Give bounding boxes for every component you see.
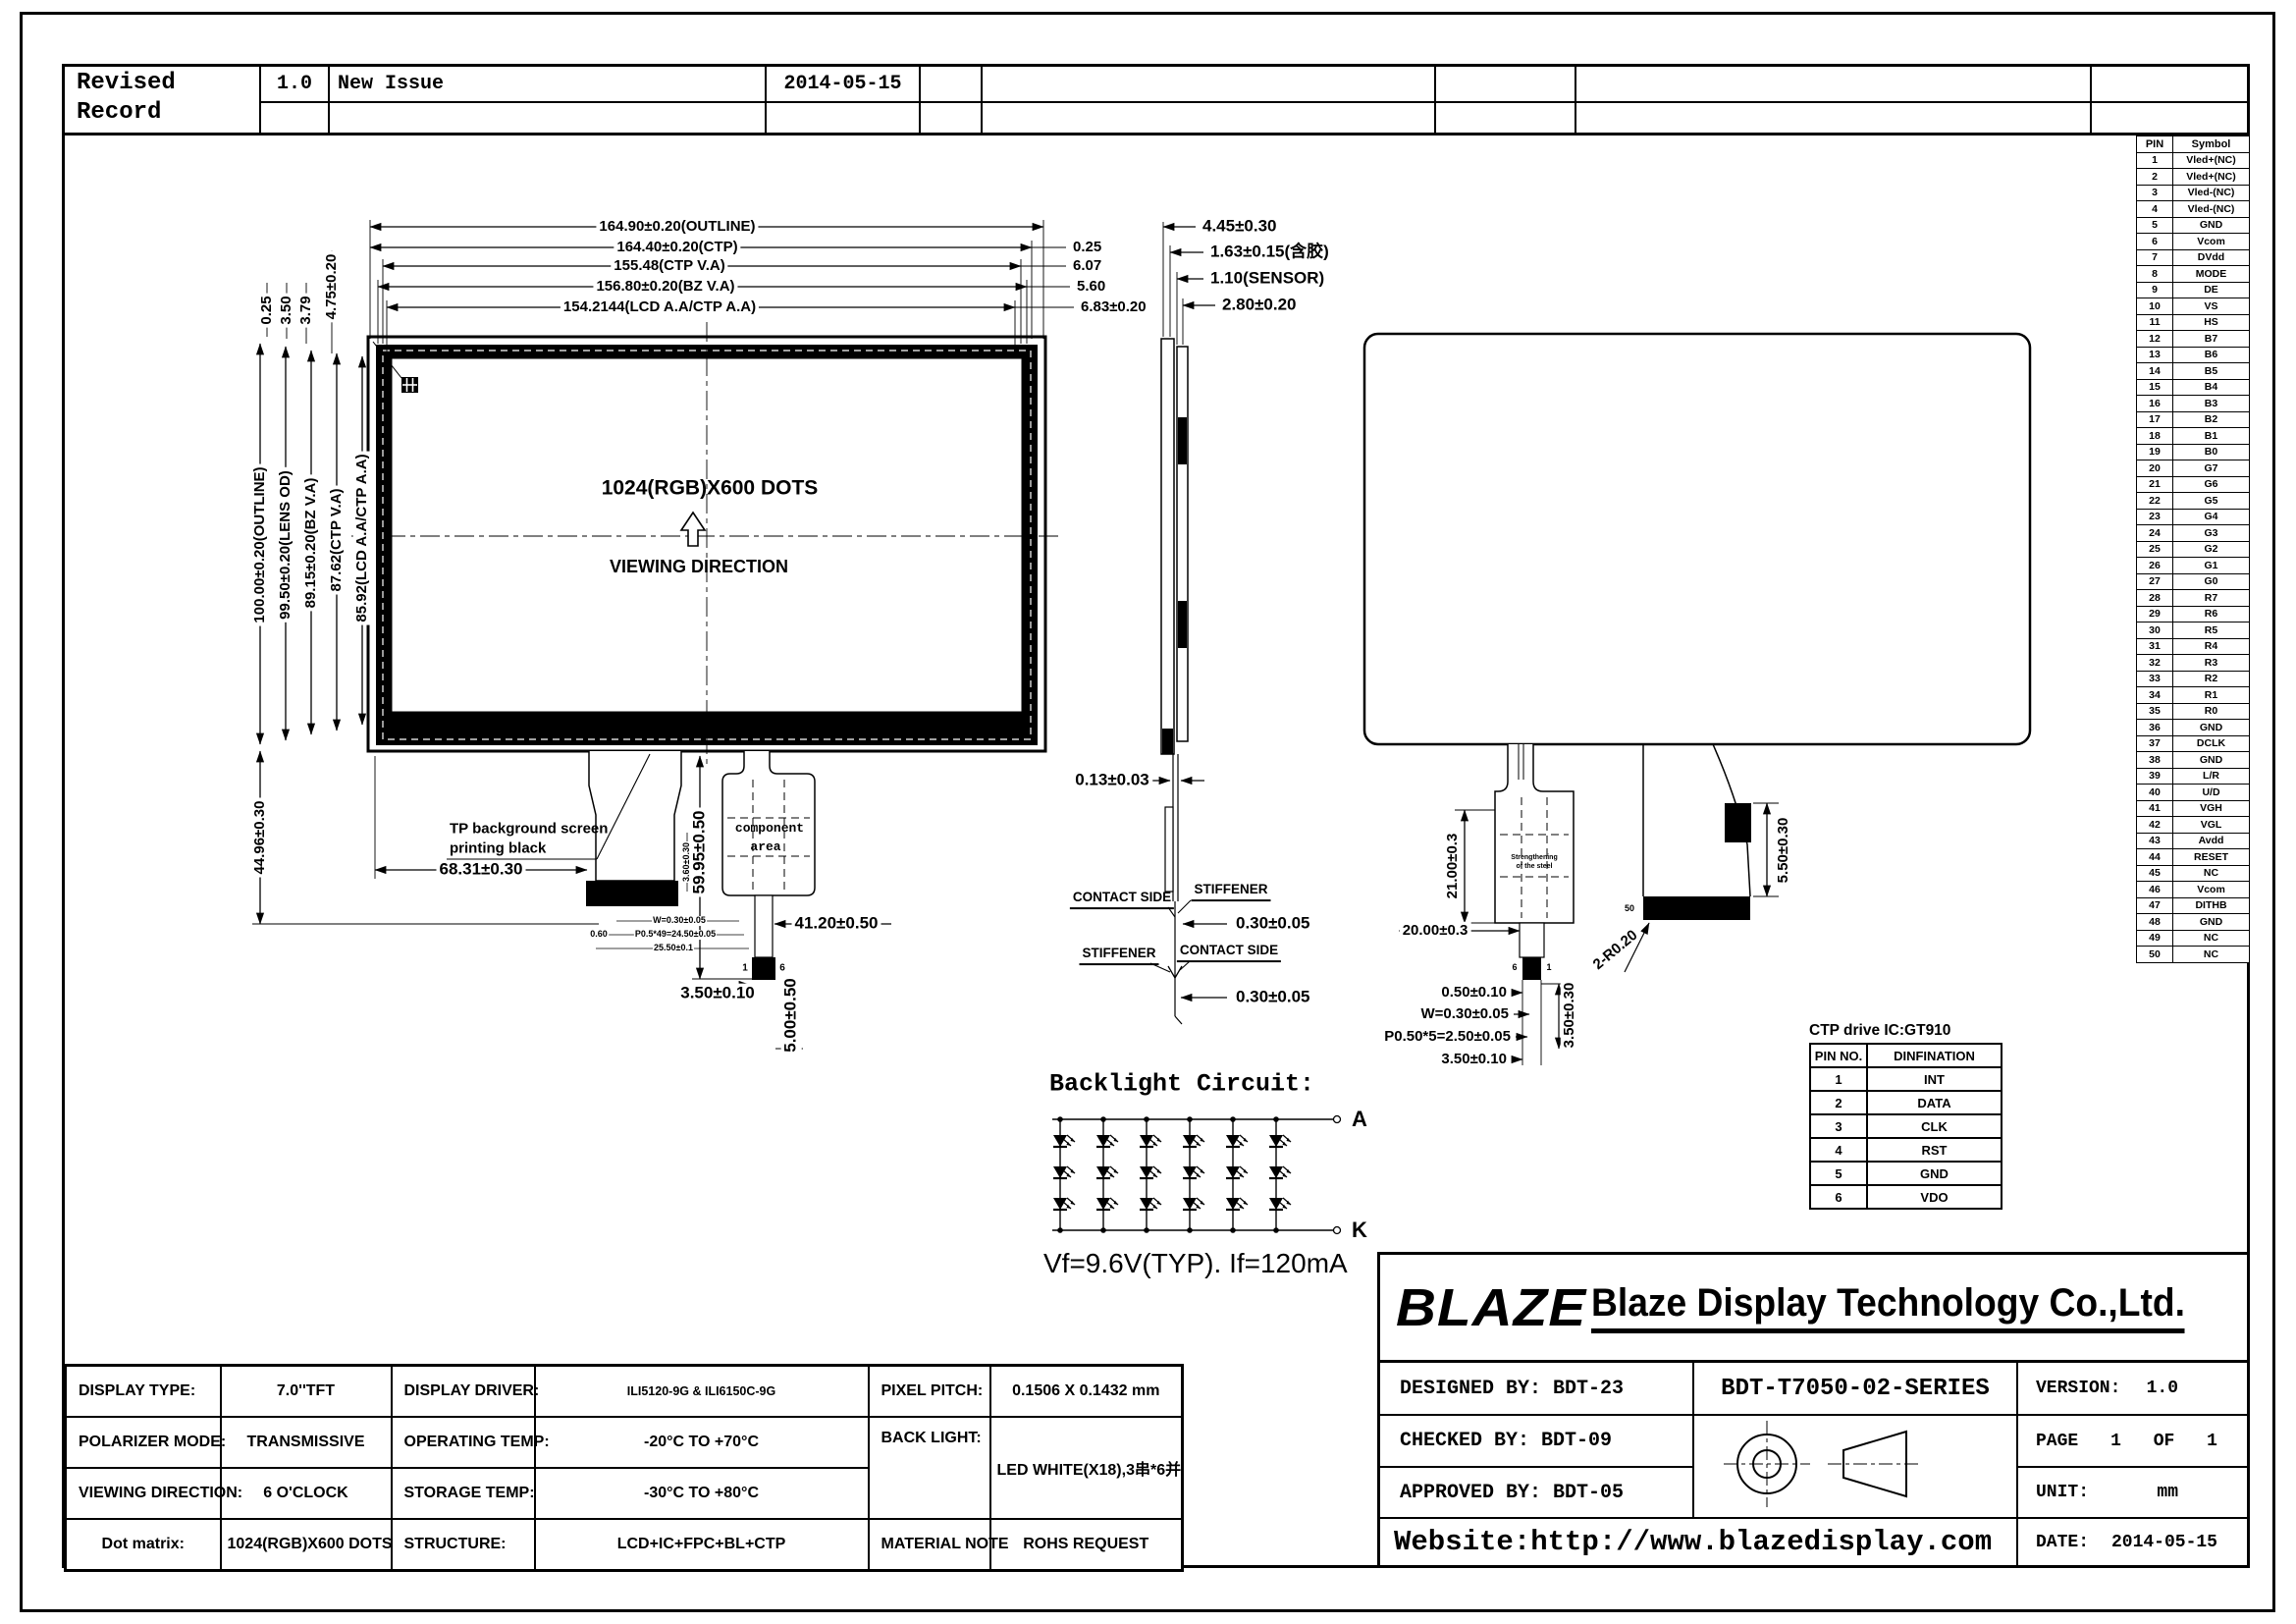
spec-value: TRANSMISSIVE [221, 1417, 392, 1468]
dim-label: 5.60 [1074, 278, 1108, 297]
unit-cell: UNIT:mm [2018, 1466, 2247, 1517]
dim-label: W=0.30±0.05 [652, 916, 707, 926]
spec-label: Dot matrix: [66, 1519, 221, 1571]
pin-number-label: 50 [1624, 904, 1635, 914]
revision-record-strip: Revised Record 1.0 New Issue 2014-05-15 [62, 64, 2250, 135]
spec-value: 1024(RGB)X600 DOTS [221, 1519, 392, 1571]
spec-label: VIEWING DIRECTION: [66, 1468, 221, 1519]
dim-label: 100.00±0.20(OUTLINE) [251, 463, 270, 625]
spec-label: BACK LIGHT: [869, 1417, 990, 1519]
designed-by: DESIGNED BY: BDT-23 [1380, 1363, 1694, 1414]
pin-number-label: 6 [1511, 963, 1518, 973]
grid-note: of the steel [1517, 863, 1553, 871]
unit-value: mm [2157, 1483, 2178, 1502]
of-value: 1 [2207, 1432, 2217, 1451]
dim-label: 164.40±0.20(CTP) [614, 239, 740, 257]
of-label: OF [2154, 1432, 2175, 1451]
title-block: BLAZE Blaze Display Technology Co.,Ltd. … [1377, 1252, 2250, 1568]
dim-label: 44.96±0.30 [251, 798, 270, 878]
pin-row: 49NC [2137, 930, 2250, 947]
revision-empty-cell [921, 103, 983, 133]
version-cell: VERSION:1.0 [2018, 1363, 2247, 1414]
date-cell: DATE:2014-05-15 [2018, 1517, 2247, 1565]
symbol-col-header: Symbol [2173, 136, 2250, 153]
dim-label: 155.48(CTP V.A) [611, 257, 727, 276]
pin-row: 8MODE [2137, 266, 2250, 283]
ctp-row: 2DATA [1810, 1091, 2002, 1114]
dim-label: 2.80±0.20 [1219, 296, 1300, 316]
dim-label: 21.00±0.3 [1444, 831, 1463, 902]
dim-label: P0.5*49=24.50±0.05 [634, 930, 717, 940]
pin-row: 35R0 [2137, 703, 2250, 720]
pin-row: 7DVdd [2137, 249, 2250, 266]
spec-label: POLARIZER MODE: [66, 1417, 221, 1468]
pin-row: 36GND [2137, 720, 2250, 736]
spec-value: -30°C TO +80°C [535, 1468, 869, 1519]
date-label: DATE: [2036, 1533, 2089, 1552]
revision-empty-cell [2092, 67, 2248, 103]
ctp-def-col-header: DINFINATION [1867, 1044, 2002, 1067]
dim-label: 25.50±0.1 [653, 944, 694, 953]
pin-row: 37DCLK [2137, 735, 2250, 752]
pin-row: 50NC [2137, 947, 2250, 963]
pin-row: 19B0 [2137, 444, 2250, 460]
spec-table: DISPLAY TYPE: 7.0''TFT DISPLAY DRIVER: I… [64, 1364, 1184, 1572]
pin-row: 47DITHB [2137, 897, 2250, 914]
tp-note: TP background screen [447, 818, 611, 839]
pin-row: 34R1 [2137, 687, 2250, 704]
pin-row: 20G7 [2137, 460, 2250, 477]
pin-row: 31R4 [2137, 638, 2250, 655]
pin-row: 12B7 [2137, 331, 2250, 348]
stiffener-label: STIFFENER [1079, 946, 1158, 965]
spec-label: STRUCTURE: [392, 1519, 535, 1571]
dim-label: P0.50*5=2.50±0.05 [1381, 1028, 1514, 1047]
revision-empty-cell [1436, 103, 1576, 133]
dim-label: 87.62(CTP V.A) [328, 485, 347, 594]
dim-label: 20.00±0.3 [1400, 922, 1471, 941]
dim-label: 3.50±0.30 [1561, 980, 1579, 1052]
website-text: Website:http://www.blazedisplay.com [1380, 1526, 1992, 1558]
revision-date: 2014-05-15 [767, 67, 921, 103]
dim-label: W=0.30±0.05 [1417, 1005, 1512, 1024]
pin-row: 42VGL [2137, 817, 2250, 834]
dim-label: 68.31±0.30 [437, 860, 526, 881]
company-header: BLAZE Blaze Display Technology Co.,Ltd. [1380, 1255, 2247, 1363]
dim-label: 4.75±0.20 [323, 251, 342, 323]
series-name: BDT-T7050-02-SERIES [1694, 1363, 2018, 1414]
date-value: 2014-05-15 [2111, 1533, 2217, 1552]
projection-symbol-cell [1694, 1414, 2018, 1517]
spec-value: ROHS REQUEST [990, 1519, 1183, 1571]
version-label: VERSION: [2036, 1379, 2120, 1398]
approved-by: APPROVED BY: BDT-05 [1380, 1466, 1694, 1517]
company-name: Blaze Display Technology Co.,Ltd. [1591, 1281, 2185, 1333]
revision-empty-cell [330, 103, 767, 133]
ctp-row: 6VDO [1810, 1185, 2002, 1209]
dim-label: 5.50±0.30 [1775, 815, 1793, 887]
dim-label: 3.79 [297, 293, 316, 327]
pin-row: 40U/D [2137, 785, 2250, 801]
dim-label: 0.30±0.05 [1233, 914, 1313, 935]
ctp-row: 1INT [1810, 1067, 2002, 1091]
spec-row: Dot matrix: 1024(RGB)X600 DOTS STRUCTURE… [66, 1519, 1183, 1571]
revision-empty-cell [767, 103, 921, 133]
pin-row: 43Avdd [2137, 833, 2250, 849]
pin-row: 26G1 [2137, 558, 2250, 574]
dim-label: 0.30±0.05 [1233, 988, 1313, 1008]
dim-label: 3.60±0.30 [682, 841, 692, 883]
pin-row: 39L/R [2137, 768, 2250, 785]
pin-table-header: PIN Symbol [2137, 136, 2250, 153]
revision-title-line2: Record [77, 98, 247, 128]
dim-label: 156.80±0.20(BZ V.A) [593, 278, 737, 297]
dim-label: 99.50±0.20(LENS OD) [277, 467, 295, 623]
dim-label: 59.95±0.50 [690, 808, 711, 897]
component-area-label: component [732, 821, 807, 837]
ctp-pin-col-header: PIN NO. [1810, 1044, 1867, 1067]
ctp-row: 3CLK [1810, 1114, 2002, 1138]
spec-value: -20°C TO +70°C [535, 1417, 869, 1468]
ctp-pin-table: PIN NO. DINFINATION 1INT2DATA3CLK4RST5GN… [1809, 1043, 2002, 1210]
page-cell: PAGE1OF1 [2018, 1414, 2247, 1466]
spec-value: 0.1506 X 0.1432 mm [990, 1366, 1183, 1418]
pin-number-label: 1 [1545, 963, 1552, 973]
spec-label: OPERATING TEMP: [392, 1417, 535, 1468]
viewing-direction-label: VIEWING DIRECTION [607, 557, 791, 578]
spec-value: LED WHITE(X18),3串*6并 [990, 1417, 1183, 1519]
website-cell: Website:http://www.blazedisplay.com [1380, 1517, 2018, 1565]
revision-empty-cell [2092, 103, 2248, 133]
pin-row: 46Vcom [2137, 882, 2250, 898]
revision-empty-cell [983, 103, 1436, 133]
backlight-title: Backlight Circuit: [1046, 1069, 1317, 1100]
pin-number-label: 1 [739, 962, 751, 975]
dim-label: 1.63±0.15(含胶) [1207, 243, 1332, 263]
pin-row: 18B1 [2137, 428, 2250, 445]
interface-pin-table: PIN Symbol 1Vled+(NC)2Vled+(NC)3Vled-(NC… [2136, 135, 2250, 963]
unit-label: UNIT: [2036, 1483, 2089, 1502]
pin-row: 25G2 [2137, 541, 2250, 558]
pin-row: 17B2 [2137, 411, 2250, 428]
spec-label: STORAGE TEMP: [392, 1468, 535, 1519]
blaze-logo: BLAZE [1396, 1277, 1586, 1338]
version-value: 1.0 [2147, 1379, 2178, 1398]
revision-empty-cell [261, 103, 330, 133]
dim-label: 0.25 [258, 293, 277, 327]
ctp-row: 4RST [1810, 1138, 2002, 1162]
pin-row: 33R2 [2137, 671, 2250, 687]
pin-row: 48GND [2137, 914, 2250, 931]
pin-row: 24G3 [2137, 525, 2250, 542]
page-label: PAGE [2036, 1432, 2078, 1451]
dim-label: 154.2144(LCD A.A/CTP A.A) [561, 298, 759, 317]
revision-version: 1.0 [261, 67, 330, 103]
pin-row: 30R5 [2137, 623, 2250, 639]
dim-label: 164.90±0.20(OUTLINE) [596, 218, 758, 237]
pin-col-header: PIN [2137, 136, 2173, 153]
pin-row: 27G0 [2137, 573, 2250, 590]
backlight-spec: Vf=9.6V(TYP). If=120mA [1041, 1247, 1351, 1280]
dim-label: 5.00±0.50 [781, 975, 802, 1056]
spec-value: 7.0''TFT [221, 1366, 392, 1418]
spec-label: PIXEL PITCH: [869, 1366, 990, 1418]
pin-row: 38GND [2137, 752, 2250, 769]
revision-title-line1: Revised [77, 69, 247, 98]
revision-empty-cell [1436, 67, 1576, 103]
dim-label: 4.45±0.30 [1200, 217, 1280, 238]
dim-label: 6.83±0.20 [1078, 298, 1149, 317]
revision-empty-cell [983, 67, 1436, 103]
spec-row: POLARIZER MODE: TRANSMISSIVE OPERATING T… [66, 1417, 1183, 1468]
pin-row: 11HS [2137, 314, 2250, 331]
ctp-row: 5GND [1810, 1162, 2002, 1185]
pin-row: 22G5 [2137, 493, 2250, 510]
dim-label: 3.50±0.10 [677, 984, 758, 1004]
pin-row: 21G6 [2137, 476, 2250, 493]
spec-value: 6 O'CLOCK [221, 1468, 392, 1519]
contact-side-label: CONTACT SIDE [1177, 943, 1281, 962]
spec-value: ILI5120-9G & ILI6150C-9G [535, 1366, 869, 1418]
dim-label: 0.13±0.03 [1072, 771, 1152, 791]
ctp-table-title: CTP drive IC:GT910 [1806, 1021, 1953, 1041]
spec-label: MATERIAL NOTE [869, 1519, 990, 1571]
dim-label: 0.25 [1070, 239, 1104, 257]
revision-empty-cell [1576, 103, 2092, 133]
dim-label: 3.50 [278, 293, 296, 327]
spec-label: DISPLAY DRIVER: [392, 1366, 535, 1418]
grid-note: Strengthening [1511, 854, 1557, 862]
dim-label: 1.10(SENSOR) [1207, 269, 1327, 290]
dim-label: 0.50±0.10 [1438, 984, 1510, 1002]
dim-label: 3.50±0.10 [1438, 1051, 1510, 1069]
spec-row: DISPLAY TYPE: 7.0''TFT DISPLAY DRIVER: I… [66, 1366, 1183, 1418]
datasheet-page: Revised Record 1.0 New Issue 2014-05-15 … [0, 0, 2296, 1624]
contact-side-label: CONTACT SIDE [1070, 890, 1174, 909]
pin-row: 3Vled-(NC) [2137, 185, 2250, 201]
pin-row: 32R3 [2137, 655, 2250, 672]
pin-row: 2Vled+(NC) [2137, 169, 2250, 186]
pin-row: 5GND [2137, 217, 2250, 234]
pin-row: 23G4 [2137, 509, 2250, 525]
cathode-label: K [1349, 1218, 1370, 1243]
pin-row: 4Vled-(NC) [2137, 201, 2250, 218]
dim-label: 41.20±0.50 [792, 914, 881, 935]
pin-row: 10VS [2137, 298, 2250, 315]
pin-row: 45NC [2137, 865, 2250, 882]
pin-row: 44RESET [2137, 849, 2250, 866]
pin-row: 1Vled+(NC) [2137, 152, 2250, 169]
component-area-label: area [747, 839, 783, 855]
pin-row: 13B6 [2137, 347, 2250, 363]
pin-row: 41VGH [2137, 800, 2250, 817]
spec-label: DISPLAY TYPE: [66, 1366, 221, 1418]
stiffener-label: STIFFENER [1191, 882, 1270, 901]
revision-title: Revised Record [65, 67, 261, 133]
page-value: 1 [2110, 1432, 2121, 1451]
dim-label: 6.07 [1070, 257, 1104, 276]
revision-empty-cell [1576, 67, 2092, 103]
dim-label: 89.15±0.20(BZ V.A) [302, 475, 321, 612]
pin-row: 14B5 [2137, 363, 2250, 380]
dot-matrix-label: 1024(RGB)X600 DOTS [599, 475, 822, 500]
revision-note: New Issue [330, 67, 767, 103]
revision-empty-cell [921, 67, 983, 103]
pin-number-label: 6 [776, 962, 788, 975]
pin-row: 29R6 [2137, 606, 2250, 623]
ctp-table-header: PIN NO. DINFINATION [1810, 1044, 2002, 1067]
checked-by: CHECKED BY: BDT-09 [1380, 1414, 1694, 1466]
anode-label: A [1349, 1107, 1370, 1132]
pin-row: 16B3 [2137, 396, 2250, 412]
dim-label: 85.92(LCD A.A/CTP A.A) [353, 451, 372, 624]
tp-note: printing black [447, 838, 549, 859]
pin-row: 28R7 [2137, 590, 2250, 607]
pin-row: 15B4 [2137, 379, 2250, 396]
pin-row: 6Vcom [2137, 234, 2250, 250]
pin-row: 9DE [2137, 282, 2250, 298]
dim-label: 0.60 [589, 930, 609, 940]
spec-value: LCD+IC+FPC+BL+CTP [535, 1519, 869, 1571]
